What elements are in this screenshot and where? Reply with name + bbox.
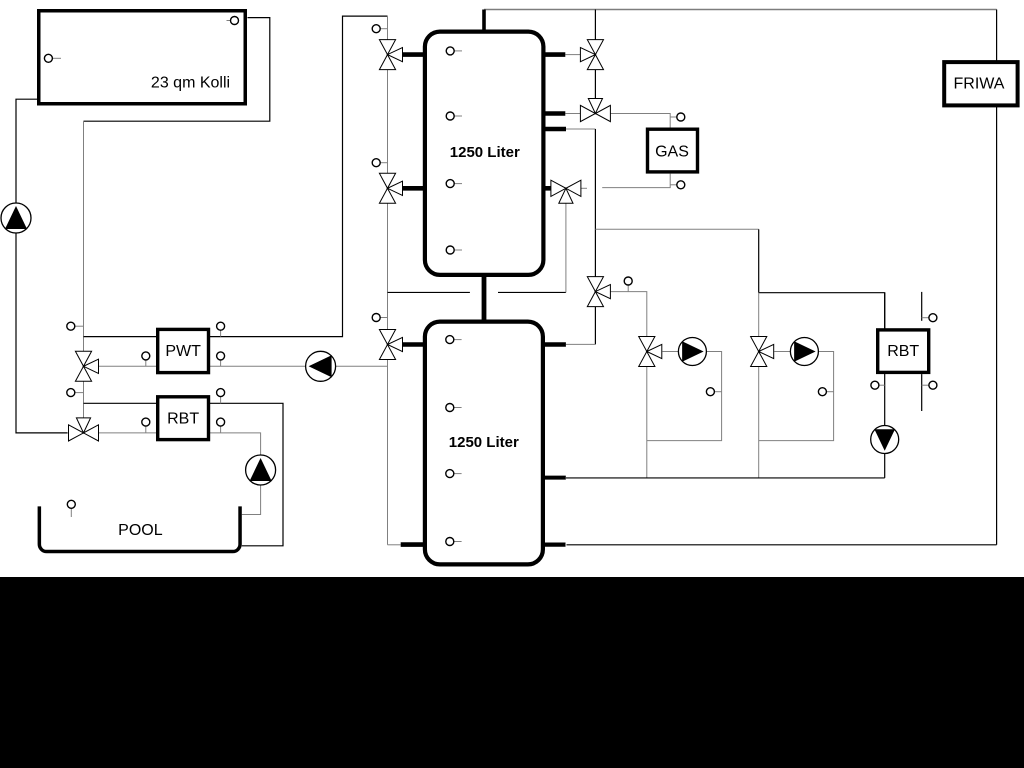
svg-text:GAS: GAS	[655, 143, 689, 160]
svg-text:1250 Liter: 1250 Liter	[449, 434, 519, 451]
svg-text:RBT: RBT	[167, 410, 199, 427]
svg-text:RBT: RBT	[887, 343, 919, 360]
svg-text:1250 Liter: 1250 Liter	[450, 144, 520, 161]
svg-text:POOL: POOL	[118, 522, 163, 539]
svg-text:FRIWA: FRIWA	[954, 76, 1005, 93]
svg-text:23 qm Kolli: 23 qm Kolli	[151, 74, 230, 91]
svg-text:PWT: PWT	[165, 343, 201, 360]
